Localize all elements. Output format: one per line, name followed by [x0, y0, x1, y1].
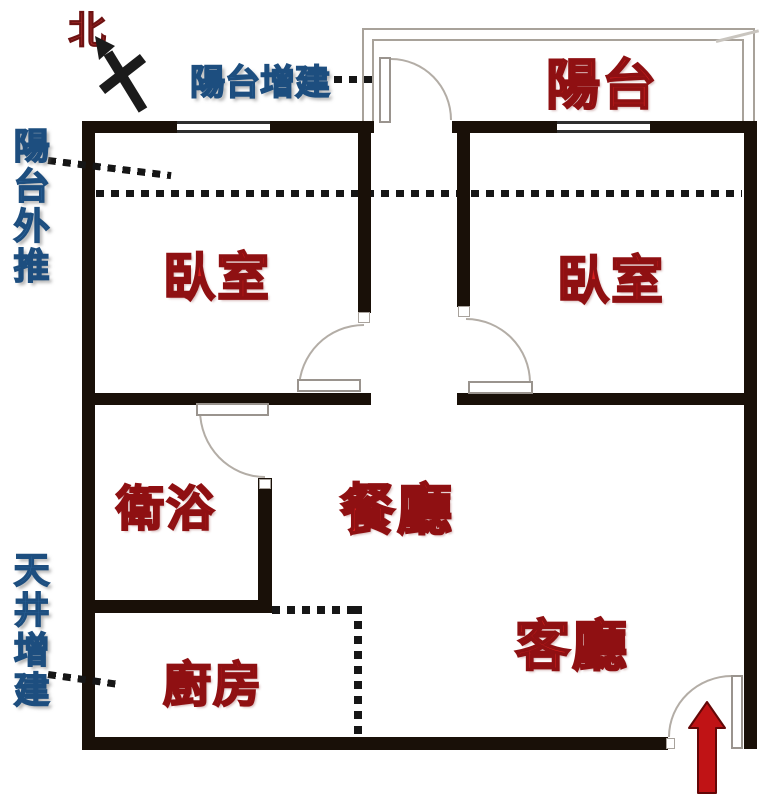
lightwell-addition-label: 天井增建 — [8, 551, 48, 711]
bedroom-left-door-leaf — [297, 379, 361, 392]
top-wall-segment — [83, 121, 177, 133]
balcony-pushout-dashed-line — [96, 190, 742, 197]
balcony-pushout-label: 陽台外推 — [8, 127, 48, 287]
top-wall-segment — [452, 121, 557, 133]
entrance-door-leaf — [731, 675, 743, 749]
bathroom-door-leaf — [196, 403, 269, 416]
compass-icon — [75, 15, 165, 120]
hall-right-wall — [457, 133, 470, 307]
bedroom-right-door-arc — [466, 318, 531, 383]
top-wall-segment — [650, 121, 757, 133]
dining-room-label: 餐廳 — [340, 465, 454, 545]
kitchen-boundary-dashed-h — [272, 606, 362, 614]
door-frame-notch — [458, 306, 470, 317]
kitchen-label: 廚房 — [163, 645, 263, 715]
bedrooms-bottom-wall-right — [457, 393, 744, 405]
top-wall-segment — [270, 121, 374, 133]
balcony-door-leaf — [379, 57, 391, 123]
bathroom-door-arc — [199, 410, 265, 478]
bathroom-right-wall — [258, 478, 272, 612]
right-wall — [744, 121, 757, 749]
bedroom-right-door-leaf — [468, 381, 533, 394]
entrance-arrow-icon — [686, 696, 728, 796]
door-frame-notch — [259, 479, 271, 489]
living-room-label: 客廳 — [515, 601, 629, 681]
door-frame-notch — [358, 312, 370, 323]
left-wall — [82, 121, 95, 749]
window-top-left — [177, 121, 270, 133]
balcony-pushout-leader-line — [48, 157, 172, 179]
door-frame-notch — [666, 738, 675, 749]
bathroom-label: 衛浴 — [116, 469, 216, 539]
bedroom-right-label: 臥室 — [557, 239, 665, 314]
kitchen-boundary-dashed-v — [354, 606, 362, 744]
balcony-label: 陽台 — [546, 41, 658, 120]
bathroom-bottom-wall — [82, 600, 272, 613]
bedroom-left-label: 臥室 — [163, 236, 271, 311]
bottom-wall — [82, 737, 668, 750]
window-top-right — [557, 121, 650, 133]
hall-left-wall — [358, 133, 371, 313]
balcony-addition-label: 陽台增建 — [190, 55, 330, 106]
floor-plan: 北 陽台增建 陽台 陽台外推 臥室 臥室 衛浴 餐廳 客廳 廚房 天井增建 — [0, 0, 760, 801]
